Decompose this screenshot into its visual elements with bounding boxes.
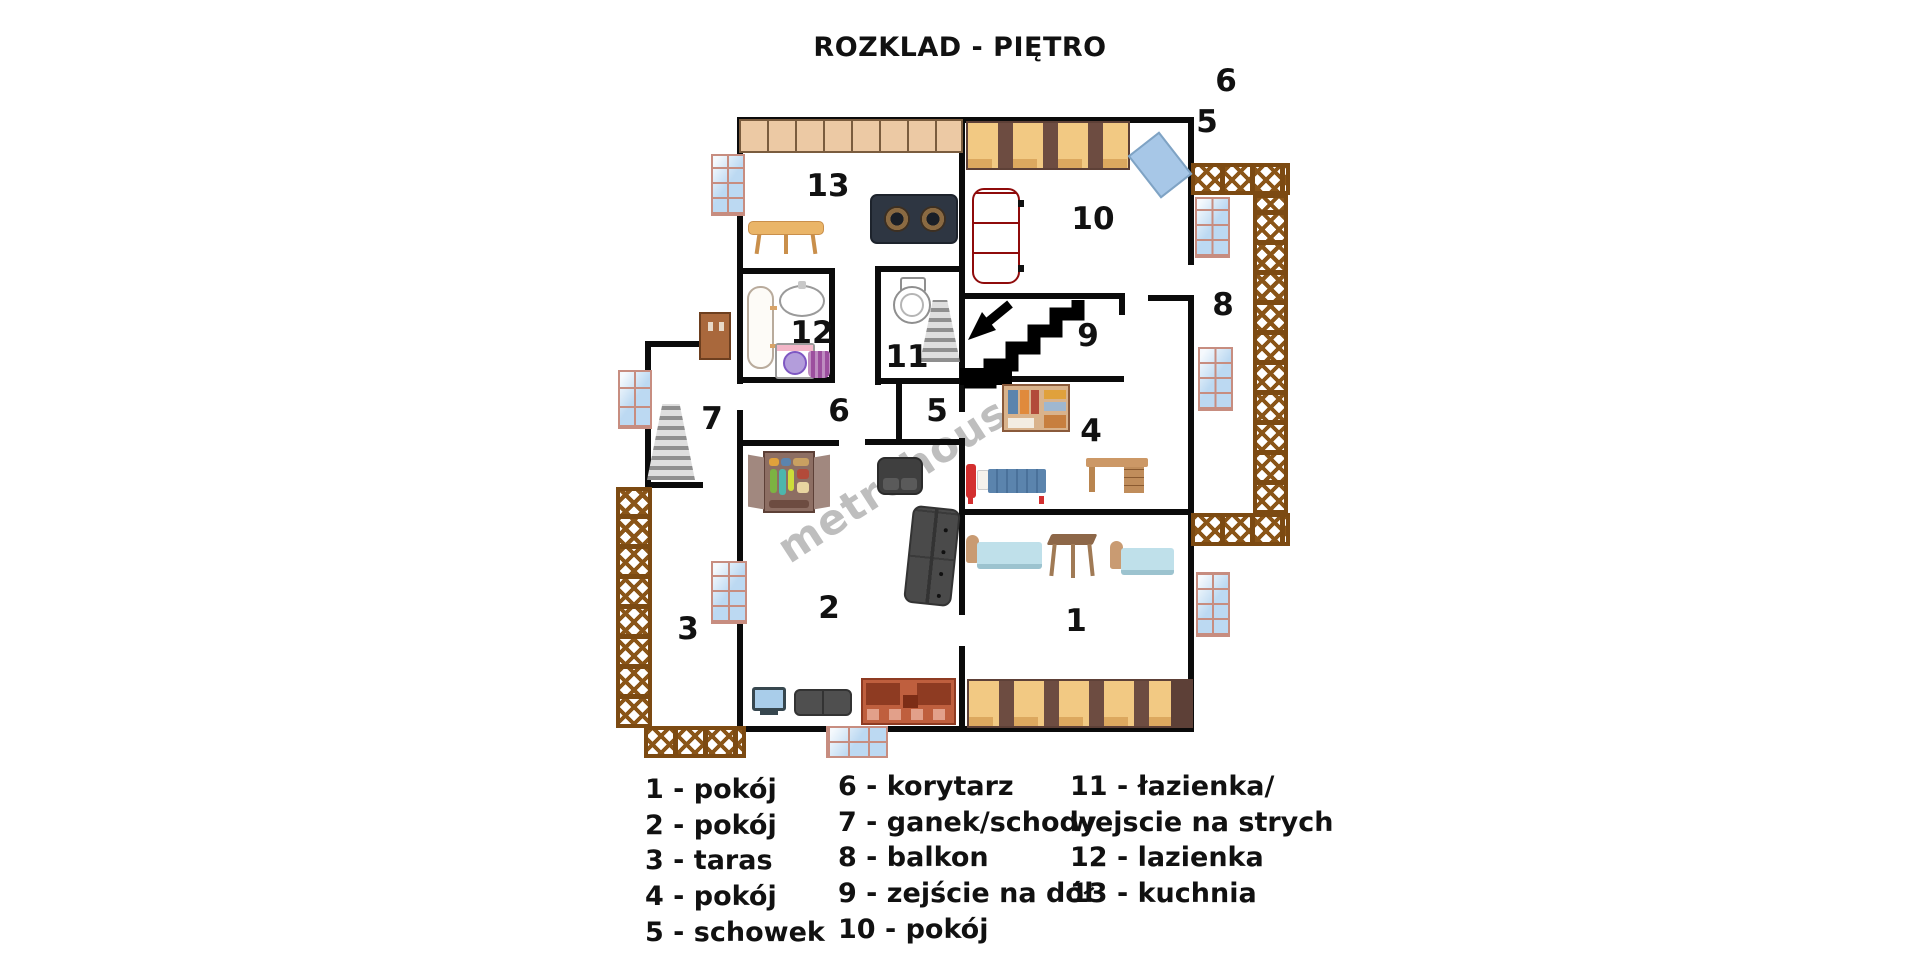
room-label-4: 4	[1080, 413, 1102, 449]
legend-column-1: 1 - pokój 2 - pokój 3 - taras 4 - pokój …	[645, 772, 825, 951]
legend-item: 5 - schowek	[645, 915, 825, 951]
page-title: ROZKLAD - PIĘTRO	[813, 32, 1106, 63]
room-label-2: 2	[818, 590, 840, 626]
window-kitchen-left-icon	[711, 154, 745, 216]
balcony-railing-bottom	[1191, 513, 1290, 546]
tv-stand-icon	[861, 678, 956, 725]
porch-stairs-icon	[647, 404, 695, 480]
legend-item: 12 - lazienka	[1070, 840, 1334, 876]
window-room4-right-icon	[1198, 347, 1233, 411]
armchair-room2-icon	[877, 457, 923, 495]
wall-room11-top	[877, 266, 965, 272]
room-label-7: 7	[701, 401, 723, 437]
wall-room5-left	[896, 380, 902, 442]
wall-room12-top	[737, 268, 833, 274]
wall-room11-bottom	[877, 378, 965, 384]
balcony-railing-top	[1191, 163, 1290, 195]
room-label-13: 13	[806, 168, 849, 204]
laundry-basket-icon	[808, 351, 830, 378]
wardrobe-row-room10-icon	[966, 121, 1130, 170]
tilted-desk-icon	[1128, 131, 1193, 198]
room-label-12: 12	[790, 315, 833, 351]
staircase-down-icon	[958, 292, 1148, 392]
legend-item: 2 - pokój	[645, 808, 825, 844]
stove-icon	[870, 194, 958, 244]
table-room1-icon	[1049, 534, 1105, 580]
legend-item: 1 - pokój	[645, 772, 825, 808]
room-label-1: 1	[1065, 603, 1087, 639]
window-room2-bottom-icon	[826, 726, 888, 758]
legend-item: 10 - pokój	[838, 912, 1096, 948]
sofa-vertical-room2-icon	[903, 505, 961, 607]
bed-right-room1-icon	[1110, 539, 1174, 575]
wall-center-lower	[959, 646, 965, 732]
desk-room4-icon	[1086, 458, 1148, 496]
legend-item: 13 - kuchnia	[1070, 876, 1334, 912]
wardrobe-row-room1-icon	[967, 679, 1193, 728]
legend-column-3: 11 - łazienka/ wejscie na strych 12 - la…	[1070, 769, 1334, 912]
legend-item: 9 - zejście na dół	[838, 876, 1096, 912]
bed-room4-icon	[966, 464, 1046, 504]
wall-center-middle	[959, 438, 965, 615]
legend-item: wejscie na strych	[1070, 805, 1334, 841]
wall-corridor-bottom-left	[737, 440, 839, 446]
wall-corridor-bottom-right	[865, 439, 965, 445]
window-room2-left-icon	[711, 561, 747, 624]
window-room1-right-icon	[1196, 572, 1230, 637]
room-label-10: 10	[1071, 201, 1114, 237]
legend-item: 4 - pokój	[645, 879, 825, 915]
kitchen-table-icon	[748, 221, 824, 255]
red-sofa-icon	[972, 188, 1020, 284]
legend-item: 7 - ganek/schody	[838, 805, 1096, 841]
wall-balcony-bracket	[1148, 295, 1193, 301]
bathtub-icon	[747, 286, 774, 369]
window-room10-right-icon	[1195, 197, 1230, 258]
room-label-11: 11	[885, 339, 928, 375]
bed-left-room1-icon	[966, 533, 1042, 573]
wall-room4-room1-divider	[959, 509, 1194, 515]
sofa-bottom-room2-icon	[794, 689, 852, 716]
terrace-railing-left	[616, 487, 652, 728]
open-wardrobe-room2-icon	[763, 451, 815, 513]
wall-porch-top	[645, 341, 703, 347]
legend-column-2: 6 - korytarz 7 - ganek/schody 8 - balkon…	[838, 769, 1096, 948]
kitchen-cabinets-icon	[739, 119, 963, 153]
room-label-5-exterior: 5	[1196, 104, 1218, 140]
room-label-9: 9	[1077, 318, 1099, 354]
legend-item: 8 - balkon	[838, 840, 1096, 876]
legend-item: 3 - taras	[645, 843, 825, 879]
balcony-railing-right	[1253, 194, 1288, 514]
room-label-8: 8	[1212, 287, 1234, 323]
shelf-unit-room4-icon	[1002, 384, 1070, 432]
room-label-6-corridor: 6	[828, 393, 850, 429]
room-label-5-storage: 5	[926, 393, 948, 429]
room-label-6-exterior: 6	[1215, 63, 1237, 99]
wall-room11-left	[875, 266, 881, 385]
tv-icon	[752, 687, 786, 711]
room-label-3: 3	[677, 611, 699, 647]
terrace-railing-bottom	[644, 726, 746, 758]
sink-icon	[779, 285, 825, 317]
entrance-door-icon	[699, 312, 731, 360]
floorplan-canvas: ROZKLAD - PIĘTRO metrohouse	[0, 0, 1920, 977]
window-porch-left-icon	[618, 370, 652, 429]
legend-item: 11 - łazienka/	[1070, 769, 1334, 805]
toilet-icon	[893, 277, 929, 327]
legend-item: 6 - korytarz	[838, 769, 1096, 805]
wall-porch-bottom	[645, 482, 703, 488]
